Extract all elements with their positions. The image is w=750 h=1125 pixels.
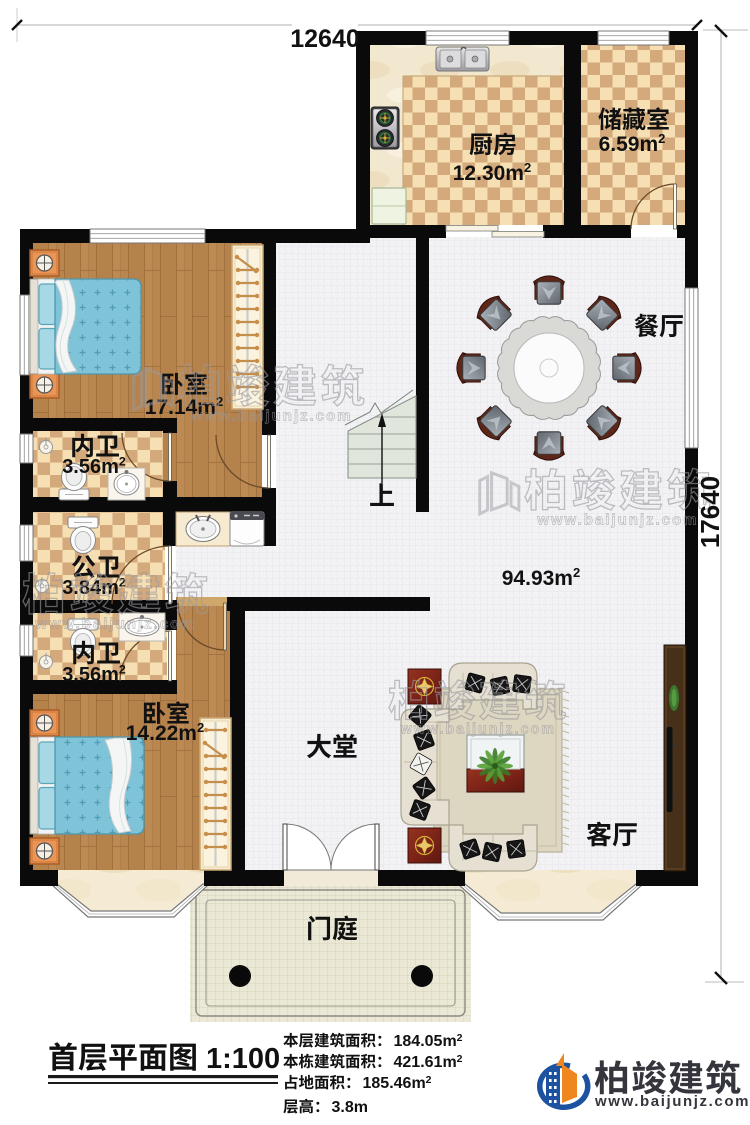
svg-text:12640: 12640: [290, 25, 360, 53]
svg-text:3.84m2: 3.84m2: [62, 575, 126, 599]
svg-text:185.46m2: 185.46m2: [363, 1074, 432, 1092]
svg-text:3.56m2: 3.56m2: [62, 454, 126, 478]
svg-text:1:100: 1:100: [206, 1043, 280, 1075]
svg-text:3.8m: 3.8m: [332, 1099, 368, 1116]
svg-text:www.baijunjz.com: www.baijunjz.com: [400, 722, 556, 738]
svg-text:17640: 17640: [695, 476, 725, 548]
svg-text:421.61m2: 421.61m2: [394, 1053, 463, 1071]
svg-text:94.93m2: 94.93m2: [502, 565, 580, 590]
svg-text:www.baijunjz.com: www.baijunjz.com: [190, 408, 352, 425]
svg-text:14.22m2: 14.22m2: [126, 720, 204, 745]
svg-text:www.baijunjz.com: www.baijunjz.com: [594, 1093, 750, 1110]
svg-text:184.05m2: 184.05m2: [394, 1032, 463, 1050]
svg-text:www.baijunjz.com: www.baijunjz.com: [34, 616, 196, 633]
svg-text:3.56m2: 3.56m2: [62, 662, 126, 686]
svg-text:6.59m2: 6.59m2: [599, 131, 666, 156]
svg-text:www.baijunjz.com: www.baijunjz.com: [536, 512, 698, 529]
svg-text:12.30m2: 12.30m2: [453, 160, 531, 185]
